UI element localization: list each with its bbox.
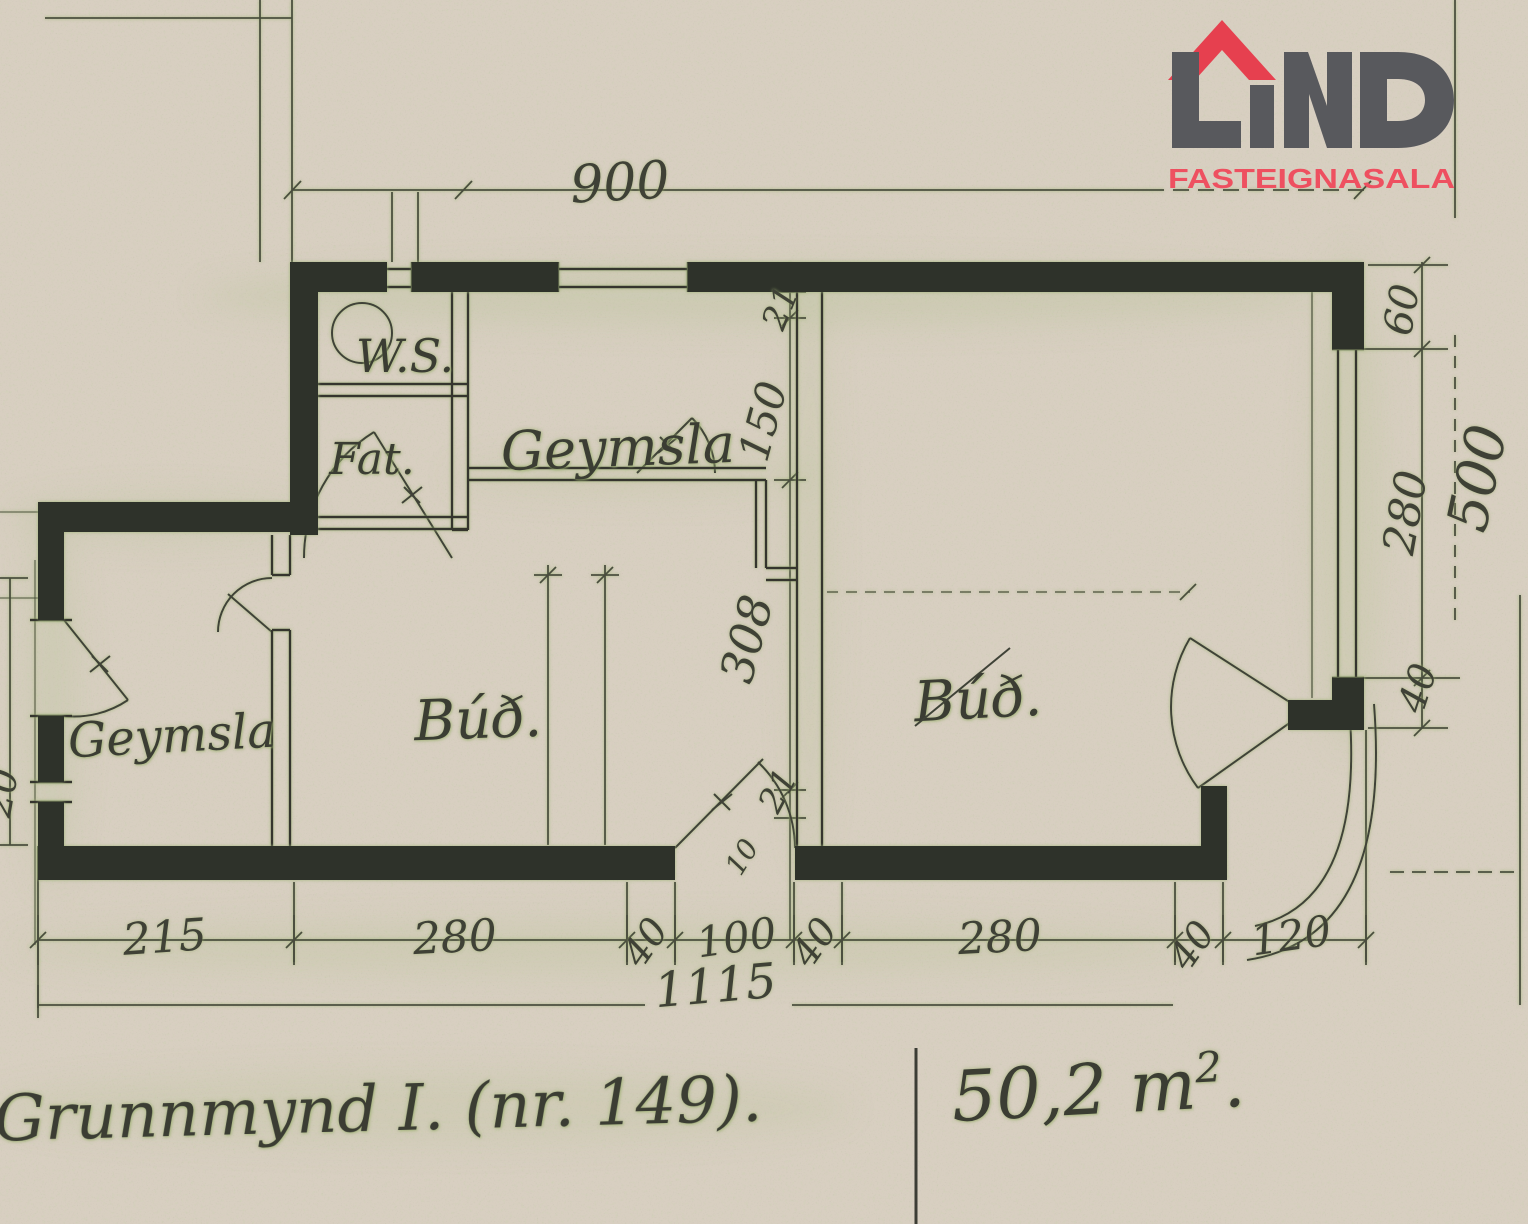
dim-top-900: 900 <box>569 150 671 215</box>
dim-right-60: 60 <box>1375 281 1429 339</box>
plan-area-sup: 2 <box>1193 1042 1223 1092</box>
dim-bottom-215: 215 <box>120 909 208 966</box>
logo-tagline: FASTEIGNASALA <box>1168 163 1455 194</box>
plan-area-tail: . <box>1220 1041 1247 1124</box>
dim-bottom-280a: 280 <box>410 910 498 965</box>
room-label-geymsla-left: Geymsla <box>67 703 278 770</box>
scanned-floorplan-page: LIND <box>0 0 1528 1224</box>
dim-bottom-280b: 280 <box>955 910 1043 965</box>
room-label-geymsla-top: Geymsla <box>500 412 736 483</box>
floorplan-drawing: W.S. Fat. Geymsla Búð. Geymsla Búð. 900 … <box>0 0 1528 1224</box>
dim-bottom-total-1115: 1115 <box>652 953 779 1019</box>
plan-area-value: 50,2 m <box>950 1043 1198 1138</box>
room-label-ws: W.S. <box>356 329 454 383</box>
room-label-fat: Fat. <box>328 434 414 485</box>
room-label-bud-left: Búð. <box>412 685 543 754</box>
